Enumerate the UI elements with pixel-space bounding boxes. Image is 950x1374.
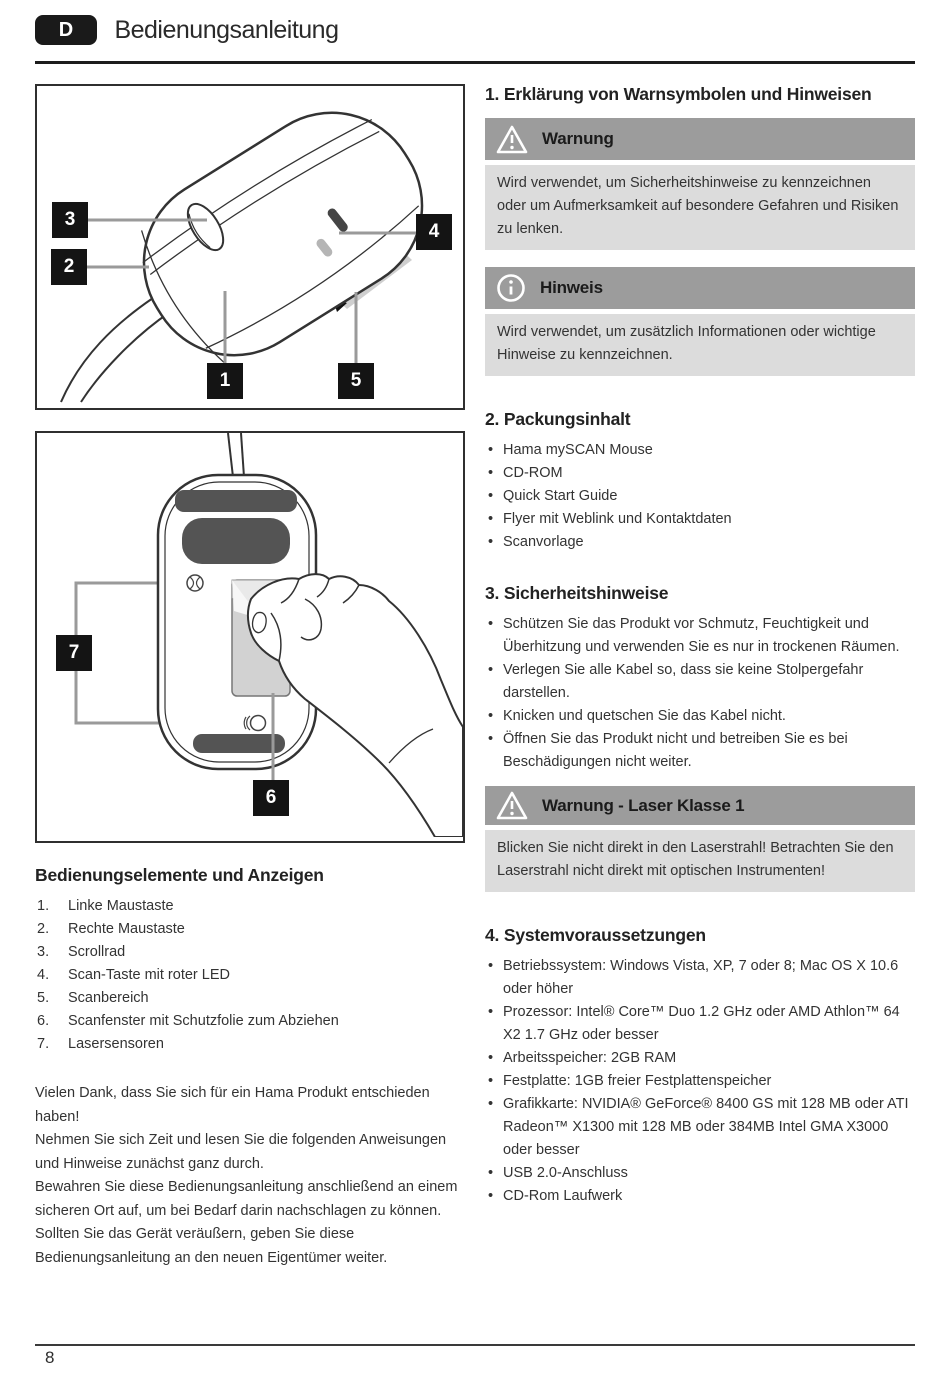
list-item: • Prozessor: Intel® Core™ Duo 1.2 GHz od… [485, 1001, 915, 1047]
page-number: 8 [45, 1348, 54, 1368]
list-item: • USB 2.0-Anschluss [485, 1162, 915, 1185]
list-item: • Öffnen Sie das Produkt nicht und betre… [485, 728, 915, 774]
list-label: Rechte Maustaste [68, 918, 185, 941]
packaging-list: • Hama mySCAN Mouse • CD-ROM • Quick Sta… [485, 439, 915, 554]
note-body: Wird verwendet, um zusätzlich Informatio… [485, 314, 915, 376]
list-item: 5. Scanbereich [35, 987, 465, 1010]
controls-list: 1. Linke Maustaste 2. Rechte Maustaste 3… [35, 895, 465, 1056]
intro-paragraph: Nehmen Sie sich Zeit und lesen Sie die f… [35, 1129, 465, 1176]
mouse-top-illustration [37, 86, 463, 404]
list-number: 4. [35, 964, 68, 987]
list-label: Scanvorlage [503, 531, 584, 554]
section-2-heading: 2. Packungsinhalt [485, 409, 915, 430]
list-label: CD-Rom Laufwerk [503, 1185, 622, 1208]
list-item: 3. Scrollrad [35, 941, 465, 964]
callout-2: 2 [51, 249, 87, 285]
figure-mouse-top-view: 3 2 1 4 5 [35, 84, 465, 410]
page-title: Bedienungsanleitung [114, 16, 338, 45]
footer-divider [35, 1344, 915, 1346]
section-4-heading: 4. Systemvoraussetzungen [485, 925, 915, 946]
list-number: 6. [35, 1010, 68, 1033]
bullet-marker: • [485, 1093, 503, 1162]
list-label: Linke Maustaste [68, 895, 174, 918]
warning-label: Warnung [542, 129, 614, 149]
list-number: 5. [35, 987, 68, 1010]
bullet-marker: • [485, 613, 503, 659]
list-item: • Festplatte: 1GB freier Festplattenspei… [485, 1070, 915, 1093]
bullet-marker: • [485, 659, 503, 705]
list-label: Schützen Sie das Produkt vor Schmutz, Fe… [503, 613, 915, 659]
callout-7: 7 [56, 635, 92, 671]
mouse-cable-edge [81, 312, 170, 402]
note-label: Hinweis [540, 278, 603, 298]
list-item: 1. Linke Maustaste [35, 895, 465, 918]
mouse-bottom-illustration [37, 433, 463, 837]
warning-header-bar: Warnung [485, 118, 915, 160]
laser-warning-label: Warnung - Laser Klasse 1 [542, 796, 744, 816]
mouse-cable-edge [241, 433, 244, 477]
list-item: • CD-ROM [485, 462, 915, 485]
list-item: • Hama mySCAN Mouse [485, 439, 915, 462]
section-3-heading: 3. Sicherheitshinweise [485, 583, 915, 604]
bullet-marker: • [485, 705, 503, 728]
list-label: Scanfenster mit Schutzfolie zum Abziehen [68, 1010, 339, 1033]
callout-3: 3 [52, 202, 88, 238]
list-item: • Verlegen Sie alle Kabel so, dass sie k… [485, 659, 915, 705]
bullet-marker: • [485, 955, 503, 1001]
note-header-bar: Hinweis [485, 267, 915, 309]
callout-5: 5 [338, 363, 374, 399]
right-column: 1. Erklärung von Warnsymbolen und Hinwei… [485, 84, 915, 1208]
thumbnail [253, 612, 267, 632]
list-label: Flyer mit Weblink und Kontaktdaten [503, 508, 732, 531]
list-item: • Betriebssystem: Windows Vista, XP, 7 o… [485, 955, 915, 1001]
list-item: • Arbeitsspeicher: 2GB RAM [485, 1047, 915, 1070]
list-label: Knicken und quetschen Sie das Kabel nich… [503, 705, 786, 728]
bullet-marker: • [485, 1162, 503, 1185]
list-label: Prozessor: Intel® Core™ Duo 1.2 GHz oder… [503, 1001, 915, 1047]
glide-pad-top [175, 490, 297, 512]
laser-warning-body: Blicken Sie nicht direkt in den Laserstr… [485, 830, 915, 892]
bullet-marker: • [485, 485, 503, 508]
callout-1: 1 [207, 363, 243, 399]
list-number: 3. [35, 941, 68, 964]
page-header: D Bedienungsanleitung [35, 15, 915, 49]
list-number: 7. [35, 1033, 68, 1056]
warning-triangle-icon [495, 124, 529, 155]
language-badge: D [35, 15, 97, 45]
list-label: Scanbereich [68, 987, 149, 1010]
list-item: 7. Lasersensoren [35, 1033, 465, 1056]
warning-triangle-icon [495, 790, 529, 821]
list-item: • Flyer mit Weblink und Kontaktdaten [485, 508, 915, 531]
info-icon [495, 272, 527, 304]
figure-mouse-bottom-view: 7 6 [35, 431, 465, 843]
mouse-cable [61, 298, 153, 402]
list-label: Quick Start Guide [503, 485, 617, 508]
list-label: Grafikkarte: NVIDIA® GeForce® 8400 GS mi… [503, 1093, 915, 1162]
mouse-outline [111, 86, 454, 388]
bullet-marker: • [485, 508, 503, 531]
list-label: Arbeitsspeicher: 2GB RAM [503, 1047, 676, 1070]
list-label: Scrollrad [68, 941, 125, 964]
list-label: Lasersensoren [68, 1033, 164, 1056]
manual-page: { "ui": { "bullet": "•" }, "header": { "… [0, 0, 950, 1374]
list-item: 4. Scan-Taste mit roter LED [35, 964, 465, 987]
list-item: • Quick Start Guide [485, 485, 915, 508]
list-label: USB 2.0-Anschluss [503, 1162, 628, 1185]
list-item: • Knicken und quetschen Sie das Kabel ni… [485, 705, 915, 728]
list-label: Betriebssystem: Windows Vista, XP, 7 ode… [503, 955, 915, 1001]
system-requirements-list: • Betriebssystem: Windows Vista, XP, 7 o… [485, 955, 915, 1208]
bullet-marker: • [485, 462, 503, 485]
glide-pad-bottom [193, 734, 285, 753]
left-column: 3 2 1 4 5 [35, 84, 465, 1270]
glide-pad-upper [182, 518, 290, 564]
list-label: Öffnen Sie das Produkt nicht und betreib… [503, 728, 915, 774]
list-label: CD-ROM [503, 462, 563, 485]
list-number: 2. [35, 918, 68, 941]
bullet-marker: • [485, 728, 503, 774]
list-label: Verlegen Sie alle Kabel so, dass sie kei… [503, 659, 915, 705]
list-item: 2. Rechte Maustaste [35, 918, 465, 941]
safety-list: • Schützen Sie das Produkt vor Schmutz, … [485, 613, 915, 774]
mouse-cable [228, 433, 233, 477]
header-divider [35, 61, 915, 64]
bullet-marker: • [485, 1070, 503, 1093]
laser-sensor-icon [187, 575, 203, 591]
list-item: • Schützen Sie das Produkt vor Schmutz, … [485, 613, 915, 659]
list-item: 6. Scanfenster mit Schutzfolie zum Abzie… [35, 1010, 465, 1033]
list-item: • CD-Rom Laufwerk [485, 1185, 915, 1208]
bullet-marker: • [485, 531, 503, 554]
callout-4: 4 [416, 214, 452, 250]
bullet-marker: • [485, 1047, 503, 1070]
intro-text: Vielen Dank, dass Sie sich für ein Hama … [35, 1082, 465, 1270]
laser-warning-header-bar: Warnung - Laser Klasse 1 [485, 786, 915, 825]
list-label: Hama mySCAN Mouse [503, 439, 653, 462]
warning-body: Wird verwendet, um Sicherheitshinweise z… [485, 165, 915, 250]
bullet-marker: • [485, 1001, 503, 1047]
intro-paragraph: Vielen Dank, dass Sie sich für ein Hama … [35, 1082, 465, 1129]
bullet-marker: • [485, 1185, 503, 1208]
mouse-body [111, 86, 454, 388]
controls-heading: Bedienungselemente und Anzeigen [35, 865, 465, 886]
callout-6: 6 [253, 780, 289, 816]
list-number: 1. [35, 895, 68, 918]
list-label: Festplatte: 1GB freier Festplattenspeich… [503, 1070, 771, 1093]
list-label: Scan-Taste mit roter LED [68, 964, 230, 987]
list-item: • Grafikkarte: NVIDIA® GeForce® 8400 GS … [485, 1093, 915, 1162]
intro-paragraph: Bewahren Sie diese Bedienungsanleitung a… [35, 1176, 465, 1270]
section-1-heading: 1. Erklärung von Warnsymbolen und Hinwei… [485, 84, 915, 105]
list-item: • Scanvorlage [485, 531, 915, 554]
bullet-marker: • [485, 439, 503, 462]
